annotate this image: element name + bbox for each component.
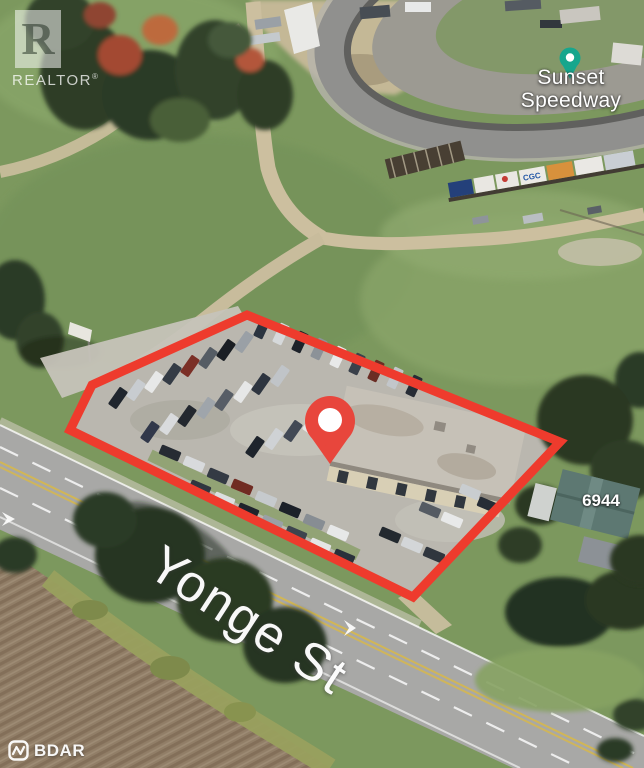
- realtor-wordmark: REALTOR®: [12, 72, 108, 89]
- bdar-watermark: BDAR: [8, 740, 85, 761]
- house-number-label: 6944: [572, 491, 630, 511]
- bdar-logo-icon: [8, 740, 29, 761]
- registered-symbol: ®: [92, 72, 98, 81]
- aerial-listing-photo: CGC: [0, 0, 644, 768]
- speedway-label: Sunset Speedway: [498, 66, 644, 112]
- speedway-label-line2: Speedway: [498, 89, 644, 112]
- bdar-wordmark: BDAR: [34, 741, 85, 761]
- realtor-logo: R: [15, 10, 61, 68]
- realtor-watermark: R REALTOR®: [12, 10, 108, 89]
- speedway-label-line1: Sunset: [498, 66, 644, 89]
- realtor-monogram: R: [21, 16, 54, 62]
